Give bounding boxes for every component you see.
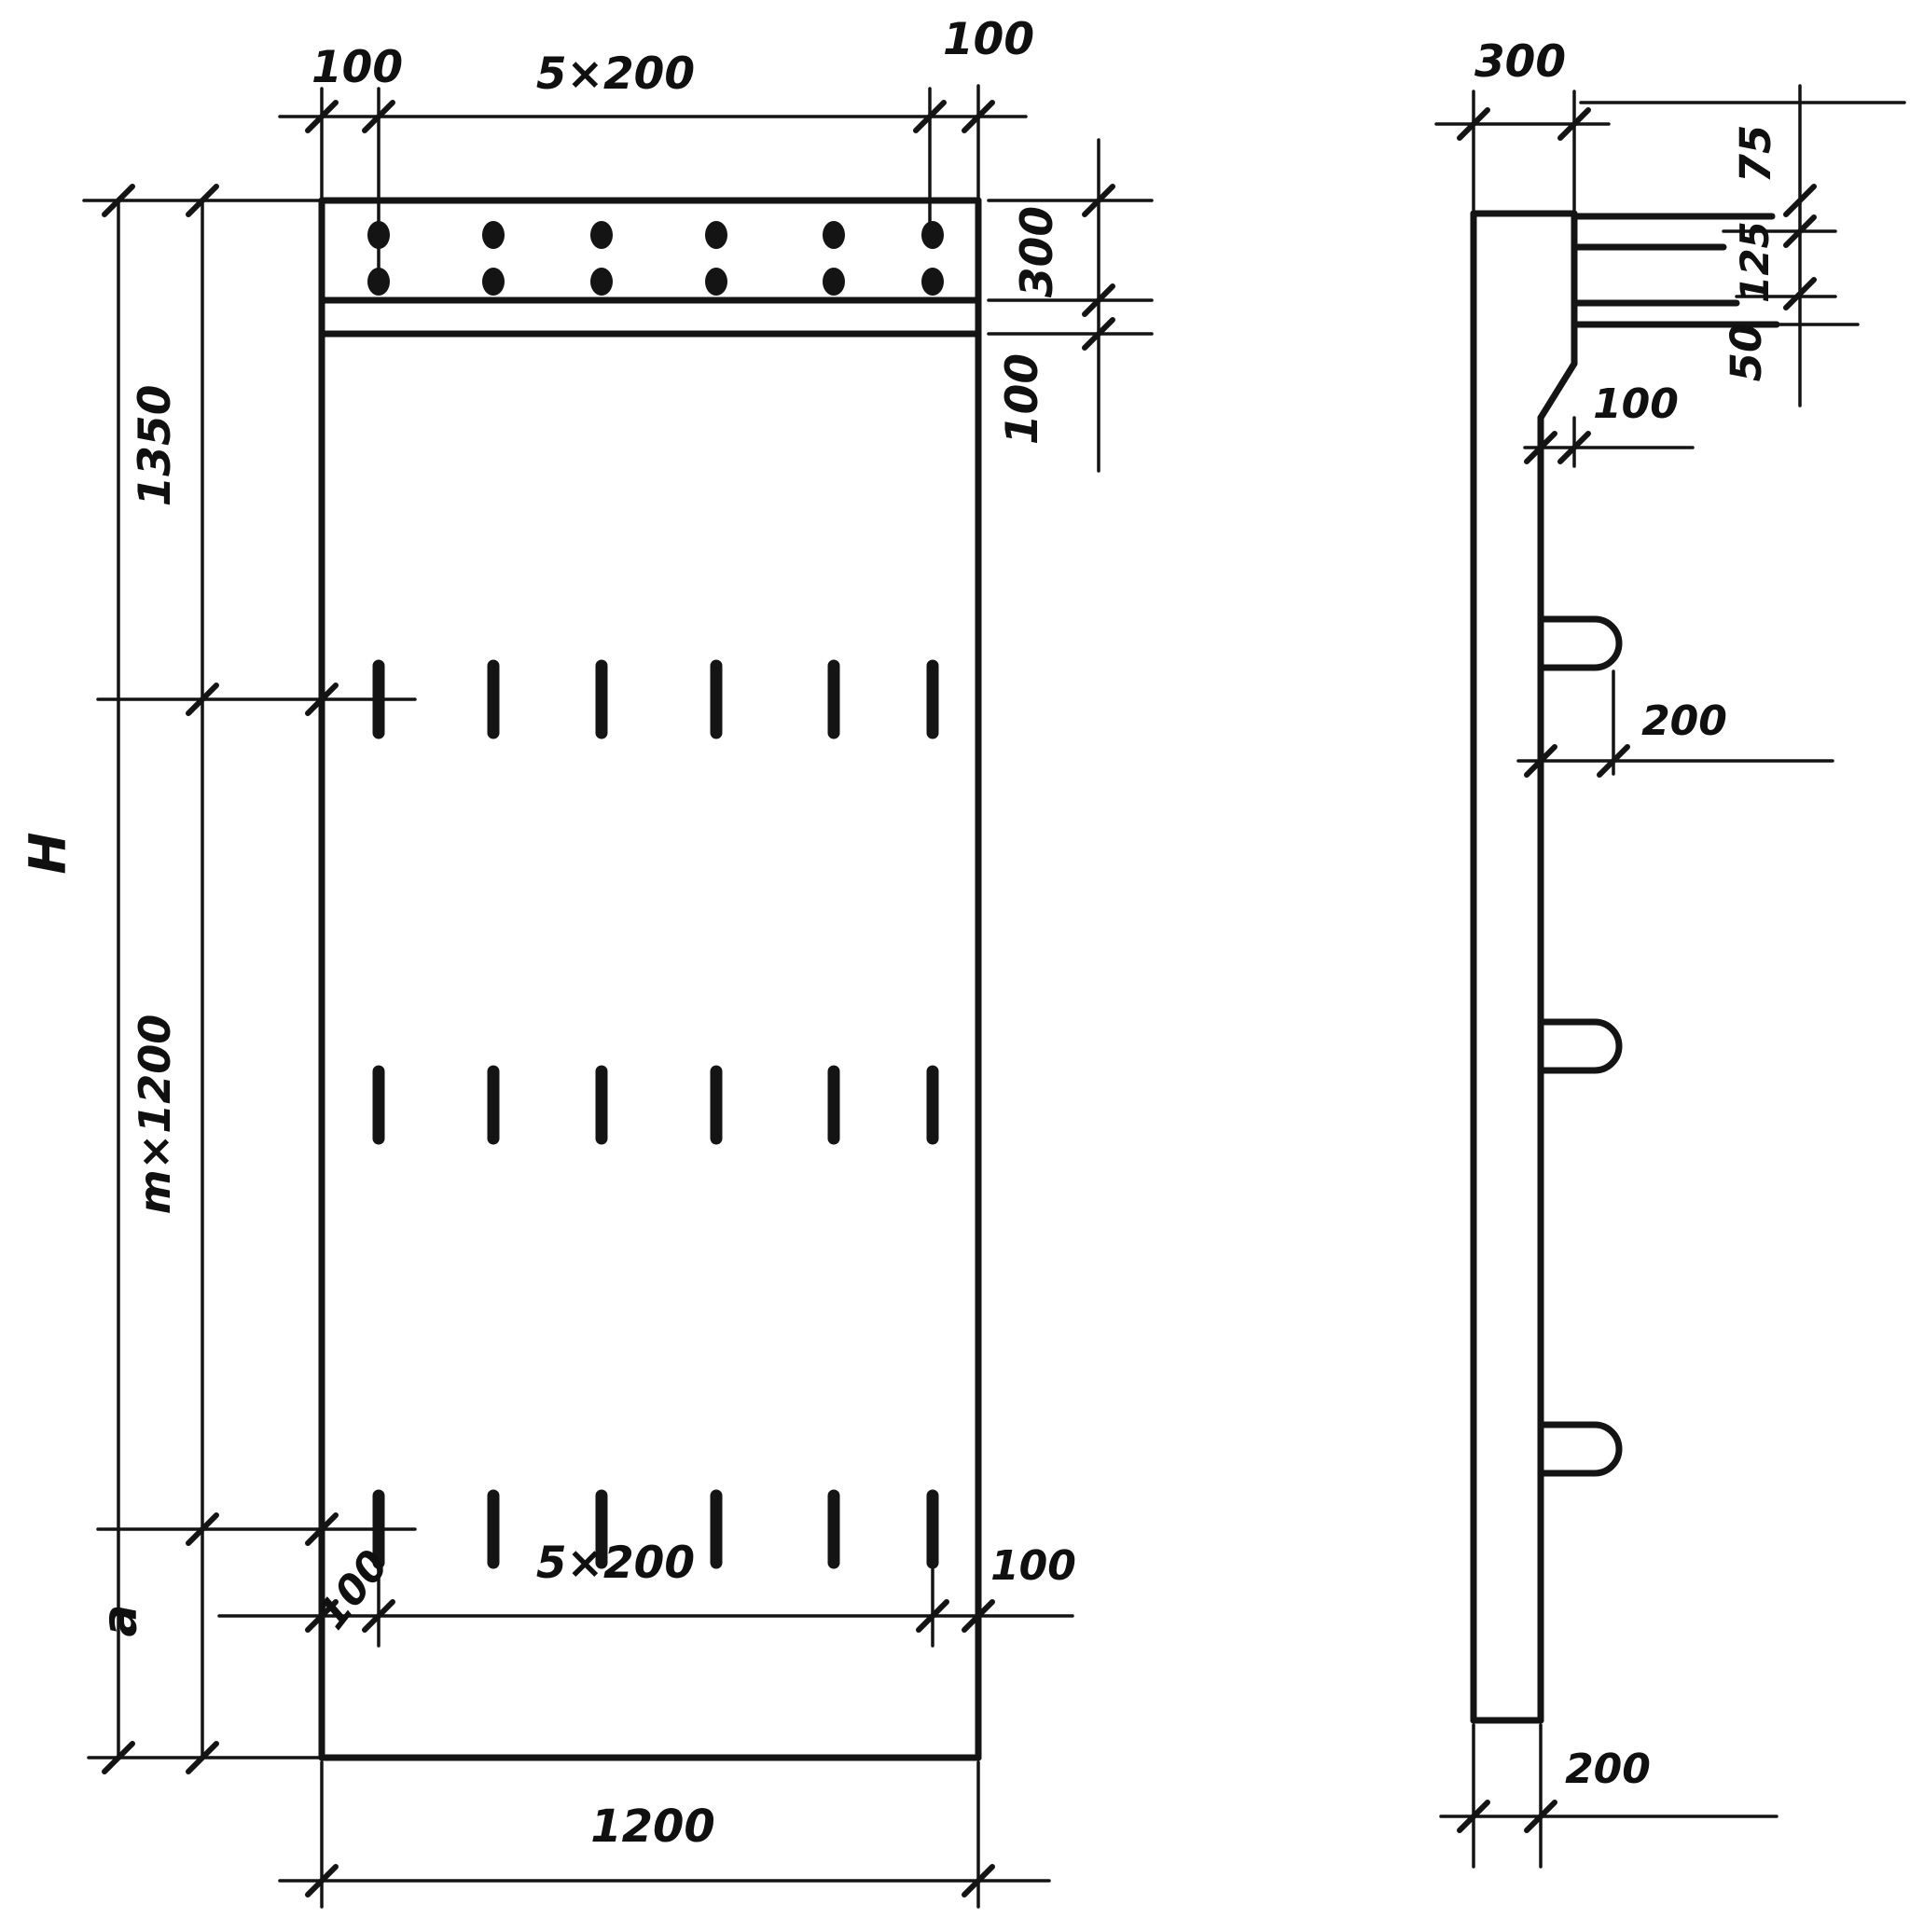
rebar-dot <box>705 268 727 296</box>
dim-left-mx1200-label: m×1200 <box>130 1014 180 1215</box>
dim-side-125-label: 125 <box>1732 221 1778 303</box>
rebar-dot <box>590 268 613 296</box>
rebar-dot <box>482 268 505 296</box>
dim-bot-right-100-label: 100 <box>990 1542 1076 1590</box>
engineering-drawing-sheet: 1005×2001003001001350Hm×1200a1005×200100… <box>0 0 1910 1932</box>
rebar-dot <box>921 268 944 296</box>
rebar-dots <box>367 221 944 296</box>
rebar-dot <box>705 221 727 249</box>
dim-bot-1200-label: 1200 <box>590 1801 715 1853</box>
dim-top-right-100-label: 100 <box>943 14 1034 65</box>
lifting-hook <box>1541 1022 1619 1070</box>
rebar-dot <box>482 221 505 249</box>
dim-side-200-mid-label: 200 <box>1641 697 1727 745</box>
dim-bot-5x200-label: 5×200 <box>536 1538 695 1589</box>
lifting-hook <box>1541 1425 1619 1473</box>
dim-side-300-label: 300 <box>1474 36 1566 88</box>
dim-side-200-bot-label: 200 <box>1565 1746 1651 1793</box>
dimension-labels: 1005×2001003001001350Hm×1200a1005×200100… <box>19 14 1780 1853</box>
dim-left-1350-label: 1350 <box>130 385 181 507</box>
dim-right-100-label: 100 <box>997 353 1048 445</box>
rebar-dot <box>367 268 390 296</box>
dim-top-5x200-label: 5×200 <box>536 48 695 100</box>
dim-left-a-label: a <box>92 1604 148 1636</box>
rebar-dot <box>823 268 845 296</box>
object-line <box>1541 364 1574 418</box>
dim-right-300-label: 300 <box>1012 206 1063 297</box>
dim-side-50-label: 50 <box>1722 324 1771 382</box>
lifting-hook <box>1541 619 1619 668</box>
panel-front-view <box>84 86 1904 1907</box>
dimension-ticks <box>104 103 1814 1895</box>
dim-left-H-label: H <box>19 832 77 874</box>
dim-side-75-label: 75 <box>1731 125 1780 184</box>
dim-side-100-label: 100 <box>1593 380 1679 428</box>
rebar-dot <box>590 221 613 249</box>
rebar-dot <box>367 221 390 249</box>
drawing-svg: 1005×2001003001001350Hm×1200a1005×200100… <box>0 0 1910 1932</box>
rebar-dot <box>921 221 944 249</box>
rebar-dot <box>823 221 845 249</box>
dim-top-left-100-label: 100 <box>311 42 403 93</box>
lifting-hook-dashes <box>379 666 933 1563</box>
